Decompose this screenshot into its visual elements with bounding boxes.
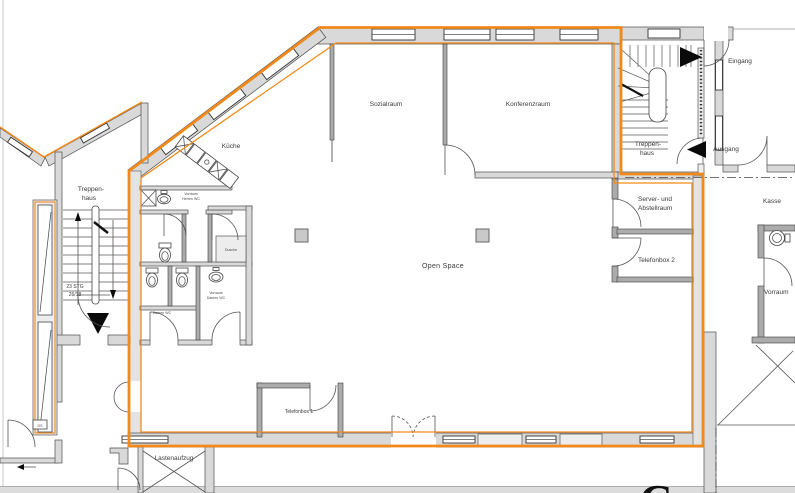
stairs-note-1: 23 STG bbox=[66, 284, 83, 290]
room-label-treppenhaus-left-2: haus bbox=[82, 195, 97, 202]
room-label-server-2: Abstellraum bbox=[638, 205, 672, 212]
toilet-icon bbox=[146, 268, 158, 287]
exterior-walls bbox=[0, 27, 795, 493]
room-label-telefonbox2: Telefonbox 2 bbox=[638, 257, 675, 264]
site-lines bbox=[717, 345, 795, 425]
diagonal-wall-windows bbox=[8, 48, 299, 156]
room-label-kueche: Küche bbox=[222, 143, 241, 150]
room-label-treppenhaus-right-1: Treppen- bbox=[635, 141, 661, 148]
room-label-server-1: Server- und bbox=[638, 196, 672, 203]
small-arrow-icon bbox=[17, 464, 36, 470]
toilet-icon bbox=[159, 243, 171, 262]
sink-icon bbox=[158, 191, 171, 204]
room-label-damen-wc: Damen WC bbox=[153, 311, 172, 315]
ds-box-label: DS bbox=[38, 424, 44, 428]
room-label-treppenhaus-right-2: haus bbox=[640, 150, 655, 157]
wc-block bbox=[140, 186, 252, 345]
room-label-telefonbox1: Telefonbox 1 bbox=[285, 409, 314, 415]
room-label-konferenzraum: Konferenzraum bbox=[506, 101, 550, 108]
exit-down-arrow-icon bbox=[87, 313, 109, 334]
room-label-vorraum-herren-2: Herren WC bbox=[182, 197, 200, 201]
room-label-open-space: Open Space bbox=[422, 263, 464, 270]
room-label-dusche: Dusche bbox=[225, 248, 237, 252]
sink-icon bbox=[770, 231, 791, 246]
room-label-vorraum-herren-1: Vorraum bbox=[184, 192, 198, 196]
sink-icon bbox=[209, 268, 223, 283]
room-label-vorraum-damen-2: Damen WC bbox=[207, 296, 226, 300]
page-frame bbox=[0, 0, 795, 493]
columns bbox=[295, 229, 489, 242]
room-label-vorraum-damen-1: Vorraum bbox=[209, 291, 223, 295]
room-label-vorraum: Vorraum bbox=[764, 289, 789, 296]
room-label-lastenaufzug: Lastenaufzug bbox=[154, 455, 193, 462]
left-shaft bbox=[33, 200, 57, 435]
floor-plan-drawing: DS Sozialraum Konferenzraum Küche Open S… bbox=[0, 0, 795, 493]
room-label-eingang: Eingang bbox=[728, 58, 752, 65]
room-label-ausgang: Ausgang bbox=[713, 146, 739, 153]
ds-box: DS bbox=[33, 420, 47, 429]
plan-section-letter: C bbox=[639, 475, 672, 493]
stairs-note-2: 26/18 bbox=[69, 292, 82, 298]
room-labels: Sozialraum Konferenzraum Küche Open Spac… bbox=[66, 58, 788, 462]
room-label-treppenhaus-left-1: Treppen- bbox=[78, 186, 104, 193]
room-label-sozialraum: Sozialraum bbox=[370, 101, 403, 108]
toilet-icon bbox=[176, 268, 188, 287]
floor-plan-page: DS Sozialraum Konferenzraum Küche Open S… bbox=[0, 0, 795, 493]
stairs-left bbox=[63, 206, 128, 334]
exit-arrow-icon bbox=[687, 141, 706, 158]
room-label-kasse: Kasse bbox=[763, 198, 781, 205]
